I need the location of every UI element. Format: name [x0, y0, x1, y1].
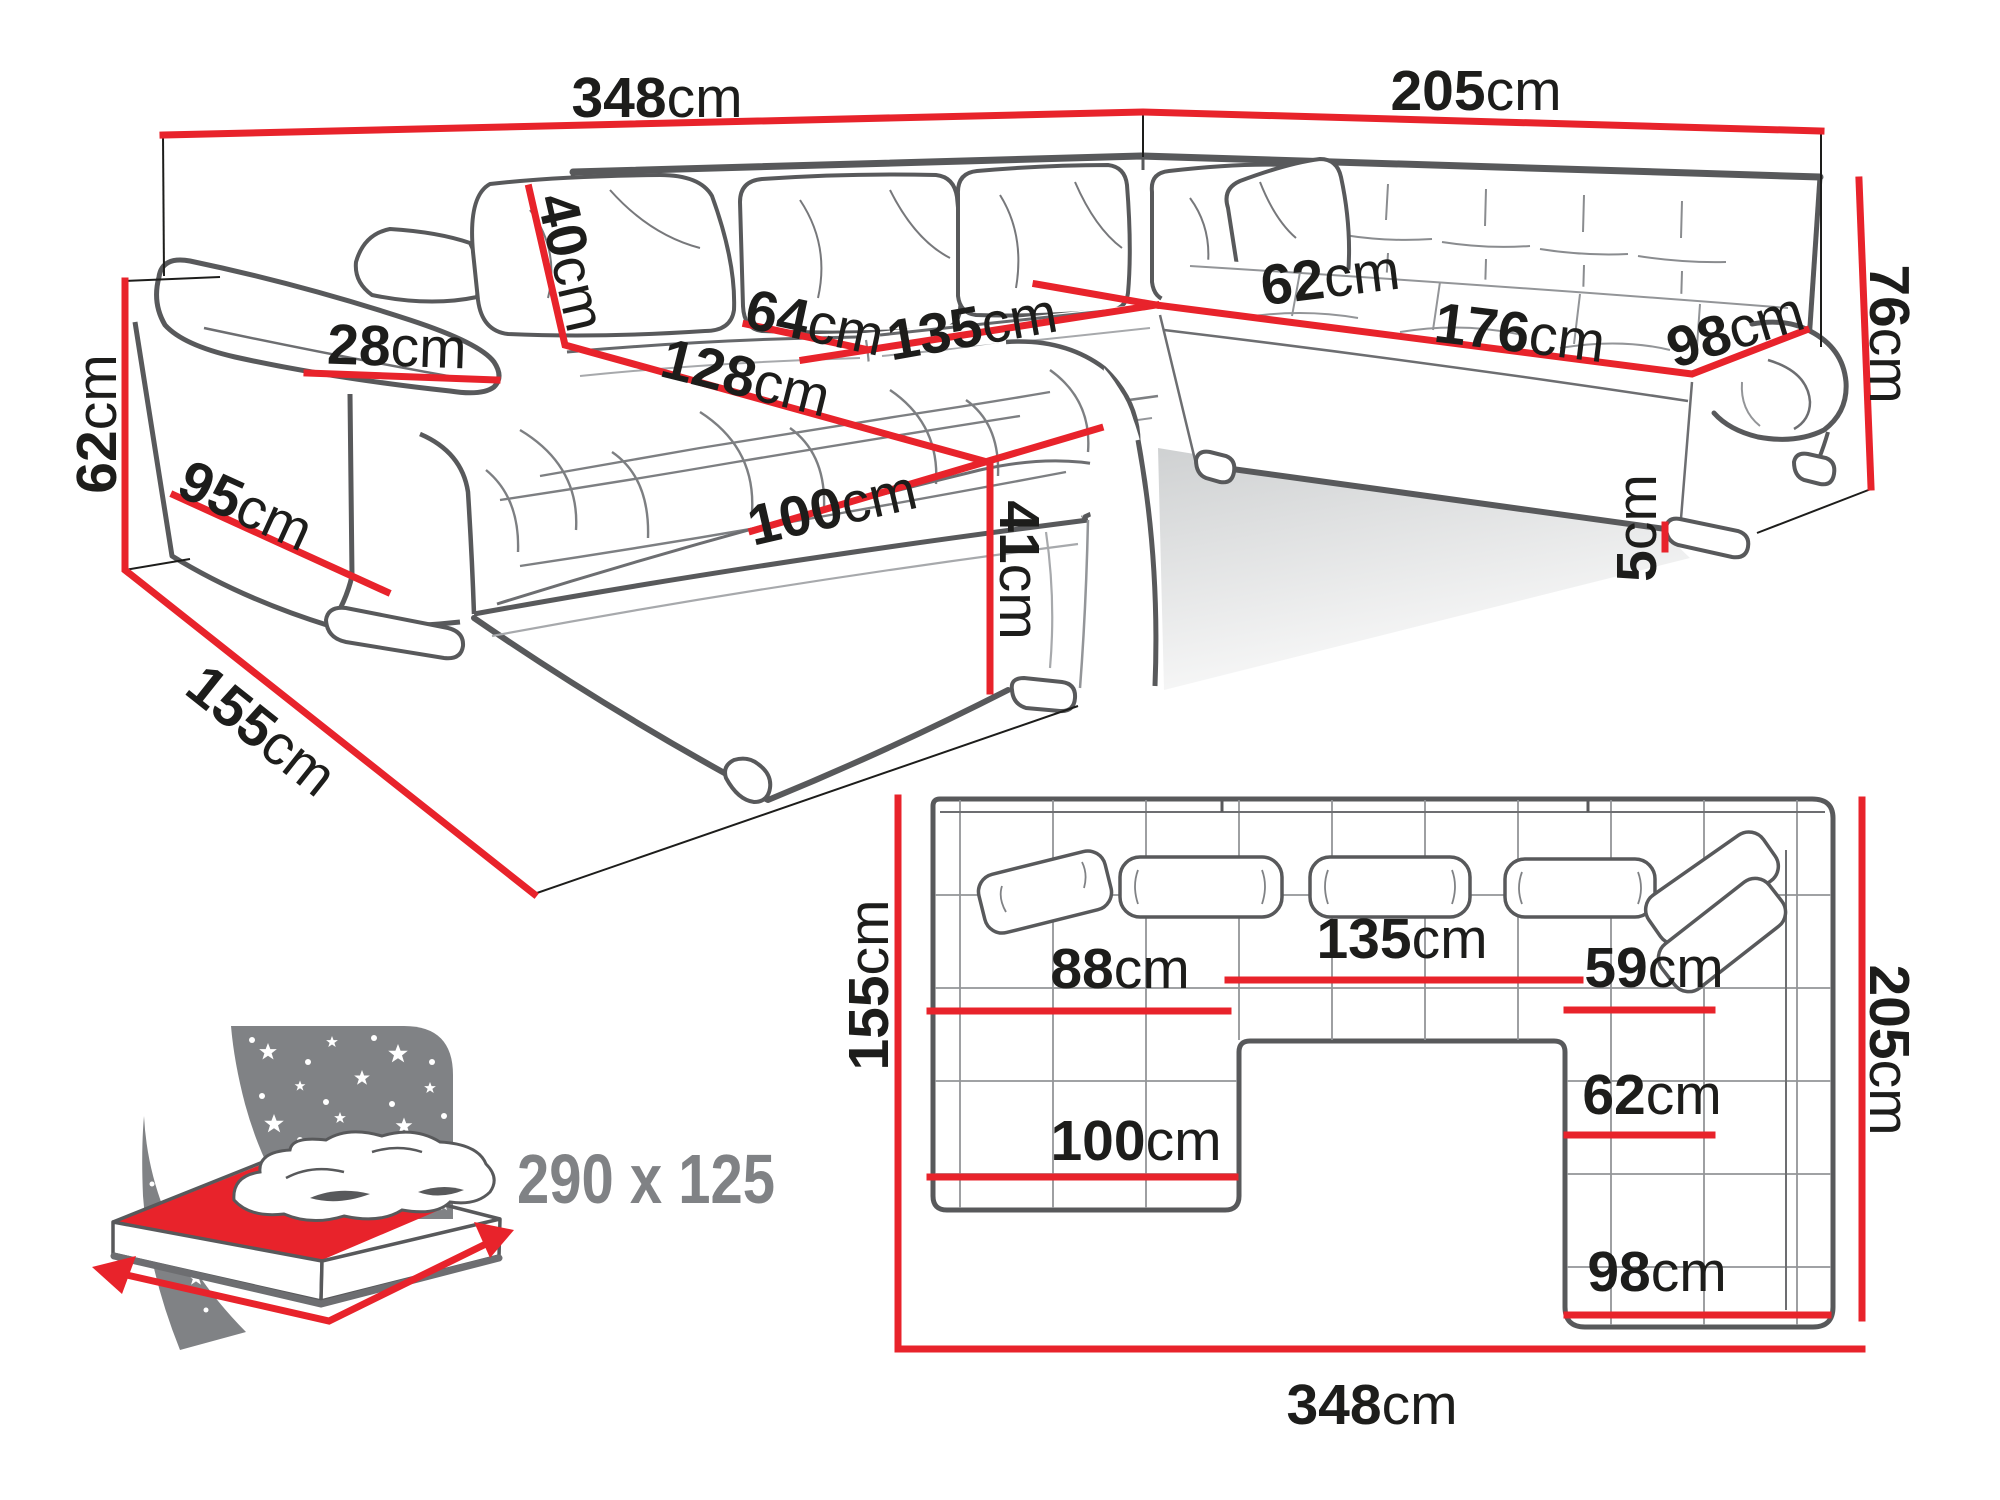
- svg-text:41cm: 41cm: [987, 500, 1051, 639]
- svg-text:155cm: 155cm: [837, 899, 901, 1070]
- svg-text:98cm: 98cm: [1587, 1240, 1726, 1304]
- svg-text:5cm: 5cm: [1605, 474, 1669, 582]
- svg-text:205cm: 205cm: [1857, 964, 1921, 1135]
- svg-text:135cm: 135cm: [1316, 907, 1487, 971]
- svg-text:59cm: 59cm: [1584, 936, 1723, 1000]
- svg-text:348cm: 348cm: [571, 66, 742, 130]
- svg-text:290 x 125: 290 x 125: [517, 1140, 775, 1218]
- svg-text:28cm: 28cm: [326, 313, 468, 382]
- svg-text:62cm: 62cm: [1582, 1063, 1721, 1127]
- svg-text:205cm: 205cm: [1390, 59, 1561, 123]
- svg-text:62cm: 62cm: [65, 354, 129, 493]
- svg-text:76cm: 76cm: [1857, 264, 1921, 403]
- svg-text:100cm: 100cm: [1050, 1109, 1221, 1173]
- svg-text:348cm: 348cm: [1286, 1373, 1457, 1437]
- svg-text:88cm: 88cm: [1050, 937, 1189, 1001]
